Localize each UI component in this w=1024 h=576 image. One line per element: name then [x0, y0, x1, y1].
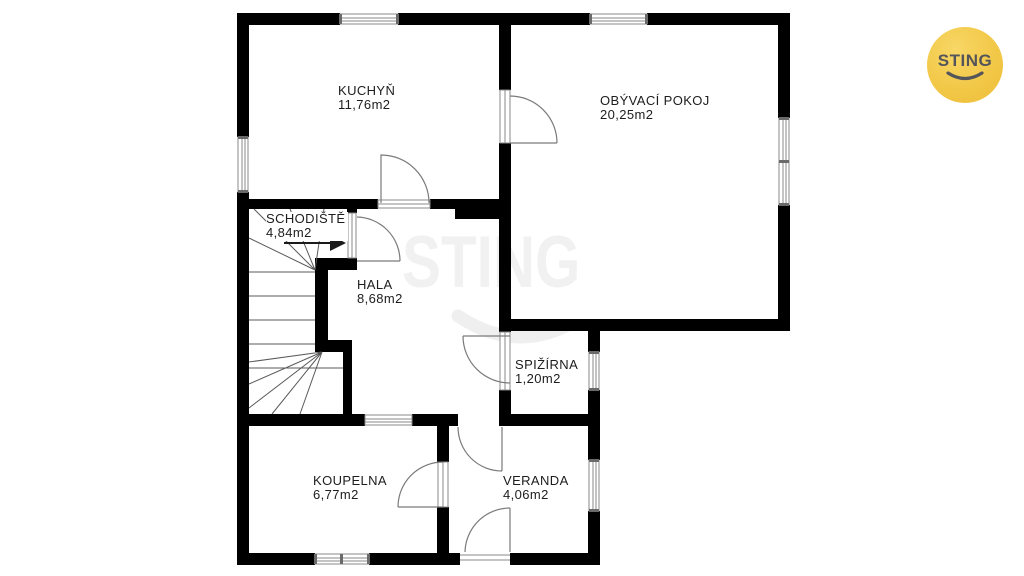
room-label-hala: HALA 8,68m2	[357, 278, 403, 306]
room-label-obyvaci-pokoj: OBÝVACÍ POKOJ 20,25m2	[600, 94, 710, 122]
sting-logo-badge: STING	[927, 27, 1003, 103]
room-area: 8,68m2	[357, 292, 403, 306]
room-label-koupelna: KOUPELNA 6,77m2	[313, 474, 387, 502]
room-area: 4,84m2	[266, 226, 345, 240]
floorplan-page: STING	[0, 0, 1024, 576]
room-label-spizirna: SPIŽÍRNA 1,20m2	[515, 358, 578, 386]
room-name: OBÝVACÍ POKOJ	[600, 94, 710, 108]
room-area: 4,06m2	[503, 488, 569, 502]
room-name: SCHODIŠTĚ	[266, 212, 345, 226]
room-area: 20,25m2	[600, 108, 710, 122]
logo-text: STING	[938, 52, 992, 69]
room-area: 11,76m2	[338, 98, 395, 112]
room-name: KOUPELNA	[313, 474, 387, 488]
room-area: 1,20m2	[515, 372, 578, 386]
room-name: VERANDA	[503, 474, 569, 488]
room-area: 6,77m2	[313, 488, 387, 502]
room-label-kuchyn: KUCHYŇ 11,76m2	[338, 84, 395, 112]
room-label-schodiste: SCHODIŠTĚ 4,84m2	[266, 212, 348, 241]
room-labels: KUCHYŇ 11,76m2 OBÝVACÍ POKOJ 20,25m2 SCH…	[0, 0, 1024, 576]
room-name: HALA	[357, 278, 403, 292]
room-label-veranda: VERANDA 4,06m2	[503, 474, 569, 502]
room-name: KUCHYŇ	[338, 84, 395, 98]
smile-icon	[943, 70, 987, 84]
room-name: SPIŽÍRNA	[515, 358, 578, 372]
